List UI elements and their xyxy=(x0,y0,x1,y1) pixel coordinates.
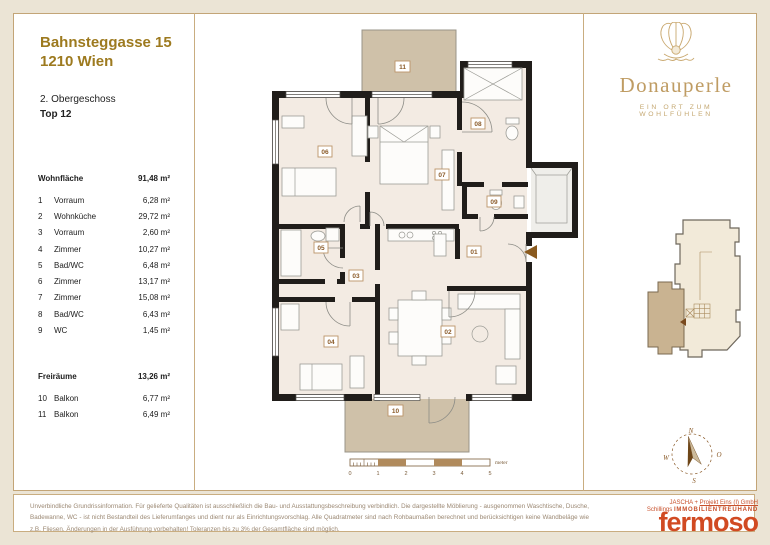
svg-text:1: 1 xyxy=(376,471,379,477)
brand-block: Donauperle EIN ORT ZUM WOHLFÜHLEN xyxy=(601,22,751,118)
company-logo-block: JASCHA + Projekt Eins (I) GmbH Schilling… xyxy=(608,500,758,534)
table-row: 2 Wohnküche 29,72 m² xyxy=(38,208,170,224)
svg-text:07: 07 xyxy=(438,172,446,179)
address-line2: 1210 Wien xyxy=(40,52,172,71)
table-row: 6 Zimmer 13,17 m² xyxy=(38,273,170,289)
svg-text:03: 03 xyxy=(352,273,360,280)
living-area-title: Wohnfläche xyxy=(38,174,138,183)
company-line1: JASCHA + Projekt Eins (I) GmbH xyxy=(608,500,758,507)
floor-unit: 2. Obergeschoss Top 12 xyxy=(40,92,116,122)
floor-label: 2. Obergeschoss xyxy=(40,92,116,107)
floorplan-drawing: 01 02 03 04 05 06 07 08 09 10 11 0 1 2 3… xyxy=(194,13,583,490)
unit-highlight xyxy=(648,282,684,354)
svg-text:02: 02 xyxy=(444,329,452,336)
balcony-10-area xyxy=(345,394,469,452)
table-row: 7 Zimmer 15,08 m² xyxy=(38,290,170,306)
table-row: 1 Vorraum 6,28 m² xyxy=(38,192,170,208)
table-row: 3 Vorraum 2,60 m² xyxy=(38,225,170,241)
svg-text:04: 04 xyxy=(327,339,335,346)
compass-o: O xyxy=(716,451,721,459)
svg-text:5: 5 xyxy=(488,471,491,477)
compass-rose: N O S W xyxy=(660,424,726,486)
compass-n: N xyxy=(688,427,694,435)
table-row: 9 WC 1,45 m² xyxy=(38,322,170,338)
brand-name: Donauperle xyxy=(601,73,751,98)
svg-text:08: 08 xyxy=(474,121,482,128)
table-row: 5 Bad/WC 6,48 m² xyxy=(38,257,170,273)
disclaimer-text: Unverbindliche Grundrissinformation. Für… xyxy=(30,503,589,533)
svg-text:05: 05 xyxy=(317,245,325,252)
svg-text:01: 01 xyxy=(470,249,478,256)
floorplan-sheet: { "header": { "address_line1": "Bahnsteg… xyxy=(0,0,770,545)
living-area-table: Wohnfläche 91,48 m² 1 Vorraum 6,28 m² 2 … xyxy=(38,174,170,339)
living-room-list: 1 Vorraum 6,28 m² 2 Wohnküche 29,72 m² 3… xyxy=(38,192,170,339)
svg-text:0: 0 xyxy=(348,471,351,477)
open-area-table: Freiräume 13,26 m² 10 Balkon 6,77 m² 11 … xyxy=(38,372,170,423)
compass-w: W xyxy=(663,454,670,462)
table-row: 10 Balkon 6,77 m² xyxy=(38,390,170,406)
elevator xyxy=(531,168,572,232)
svg-text:3: 3 xyxy=(432,471,435,477)
divider-right-column xyxy=(583,13,584,491)
brand-tagline: EIN ORT ZUM WOHLFÜHLEN xyxy=(601,104,751,118)
living-area-total: 91,48 m² xyxy=(138,174,170,183)
unit-label: Top 12 xyxy=(40,107,116,122)
project-address: Bahnsteggasse 15 1210 Wien xyxy=(40,33,172,71)
svg-text:11: 11 xyxy=(399,64,406,71)
shell-pearl-icon xyxy=(648,22,704,66)
fermoso-logo: fermoso xyxy=(608,512,758,534)
open-room-list: 10 Balkon 6,77 m² 11 Balkon 6,49 m² xyxy=(38,390,170,423)
open-area-total: 13,26 m² xyxy=(138,372,170,381)
open-area-header: Freiräume 13,26 m² xyxy=(38,372,170,381)
svg-text:10: 10 xyxy=(392,408,400,415)
scale-bar: 0 1 2 3 4 5 meter xyxy=(348,459,507,477)
svg-text:06: 06 xyxy=(321,149,329,156)
address-line1: Bahnsteggasse 15 xyxy=(40,33,172,52)
svg-text:2: 2 xyxy=(404,471,407,477)
svg-text:4: 4 xyxy=(460,471,463,477)
key-site-plan xyxy=(642,192,760,370)
svg-text:09: 09 xyxy=(490,199,498,206)
open-area-title: Freiräume xyxy=(38,372,138,381)
table-row: 11 Balkon 6,49 m² xyxy=(38,406,170,422)
svg-text:meter: meter xyxy=(495,460,508,466)
living-area-header: Wohnfläche 91,48 m² xyxy=(38,174,170,183)
table-row: 8 Bad/WC 6,43 m² xyxy=(38,306,170,322)
compass-s: S xyxy=(692,477,696,485)
table-row: 4 Zimmer 10,27 m² xyxy=(38,241,170,257)
